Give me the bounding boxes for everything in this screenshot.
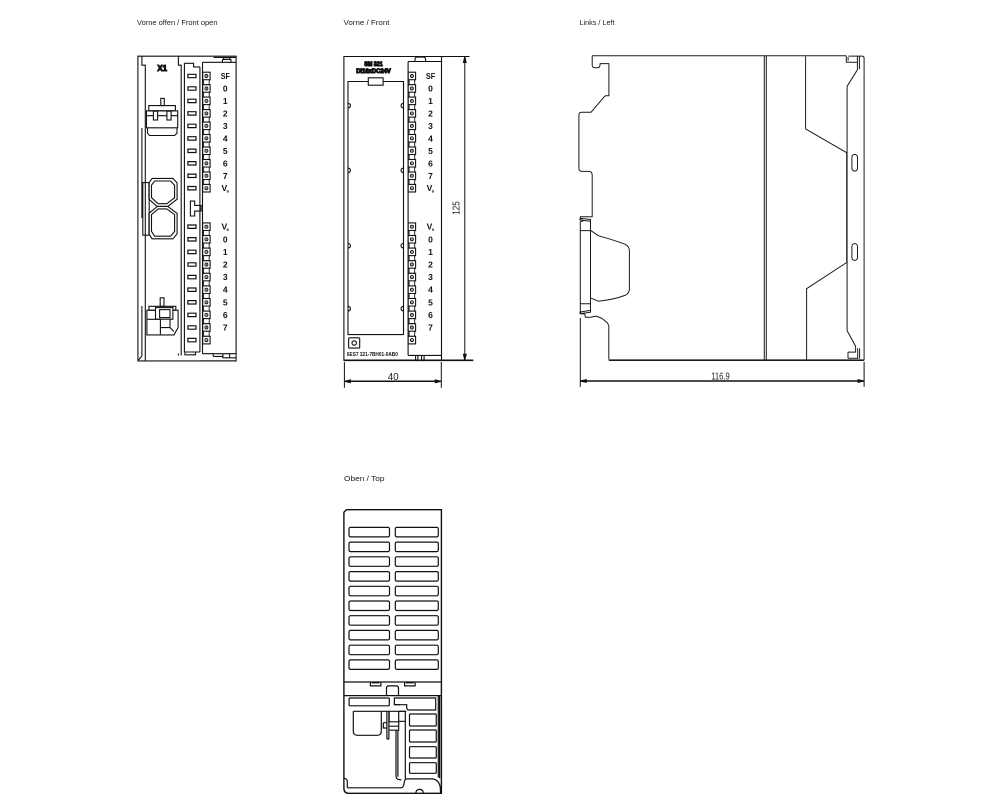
svg-text:SF: SF <box>426 71 435 81</box>
svg-text:4: 4 <box>428 133 433 143</box>
svg-text:s: s <box>432 228 435 233</box>
svg-text:6ES7 321-7BH01-0AB0: 6ES7 321-7BH01-0AB0 <box>347 352 398 358</box>
svg-text:7: 7 <box>428 171 433 181</box>
svg-text:4: 4 <box>223 285 228 295</box>
svg-text:6: 6 <box>223 310 228 320</box>
svg-text:SF: SF <box>221 71 230 81</box>
svg-text:SM 321: SM 321 <box>364 62 383 68</box>
svg-text:3: 3 <box>223 121 228 131</box>
svg-text:3: 3 <box>428 272 433 282</box>
svg-text:Vorne offen / Front open: Vorne offen / Front open <box>137 18 218 27</box>
svg-text:6: 6 <box>223 158 228 168</box>
svg-text:0: 0 <box>223 83 228 93</box>
svg-text:X1: X1 <box>157 63 167 73</box>
svg-text:1: 1 <box>428 96 433 106</box>
svg-text:s: s <box>432 190 435 195</box>
svg-text:1: 1 <box>223 96 228 106</box>
svg-text:7: 7 <box>223 323 228 333</box>
svg-text:125: 125 <box>451 201 463 215</box>
svg-text:0: 0 <box>428 234 433 244</box>
svg-text:5: 5 <box>428 146 433 156</box>
svg-text:1: 1 <box>223 247 228 257</box>
svg-text:2: 2 <box>428 108 433 118</box>
svg-text:5: 5 <box>223 297 228 307</box>
svg-text:1: 1 <box>428 247 433 257</box>
svg-text:Links / Left: Links / Left <box>580 18 616 27</box>
svg-text:6: 6 <box>428 158 433 168</box>
svg-text:40: 40 <box>388 371 399 383</box>
svg-text:5: 5 <box>428 297 433 307</box>
svg-text:5: 5 <box>223 146 228 156</box>
svg-text:s: s <box>226 228 229 233</box>
svg-text:6: 6 <box>428 310 433 320</box>
svg-text:0: 0 <box>428 83 433 93</box>
svg-text:Oben / Top: Oben / Top <box>344 474 385 483</box>
svg-text:DI16xDC24V: DI16xDC24V <box>356 69 391 75</box>
svg-text:s: s <box>226 190 229 195</box>
svg-text:2: 2 <box>428 260 433 270</box>
svg-text:116.9: 116.9 <box>711 370 730 382</box>
svg-text:0: 0 <box>223 234 228 244</box>
svg-text:4: 4 <box>223 133 228 143</box>
svg-text:2: 2 <box>223 108 228 118</box>
svg-text:7: 7 <box>428 323 433 333</box>
svg-text:Vorne / Front: Vorne / Front <box>344 18 391 27</box>
svg-text:3: 3 <box>223 272 228 282</box>
svg-text:4: 4 <box>428 285 433 295</box>
svg-text:3: 3 <box>428 121 433 131</box>
svg-text:7: 7 <box>223 171 228 181</box>
svg-text:2: 2 <box>223 260 228 270</box>
